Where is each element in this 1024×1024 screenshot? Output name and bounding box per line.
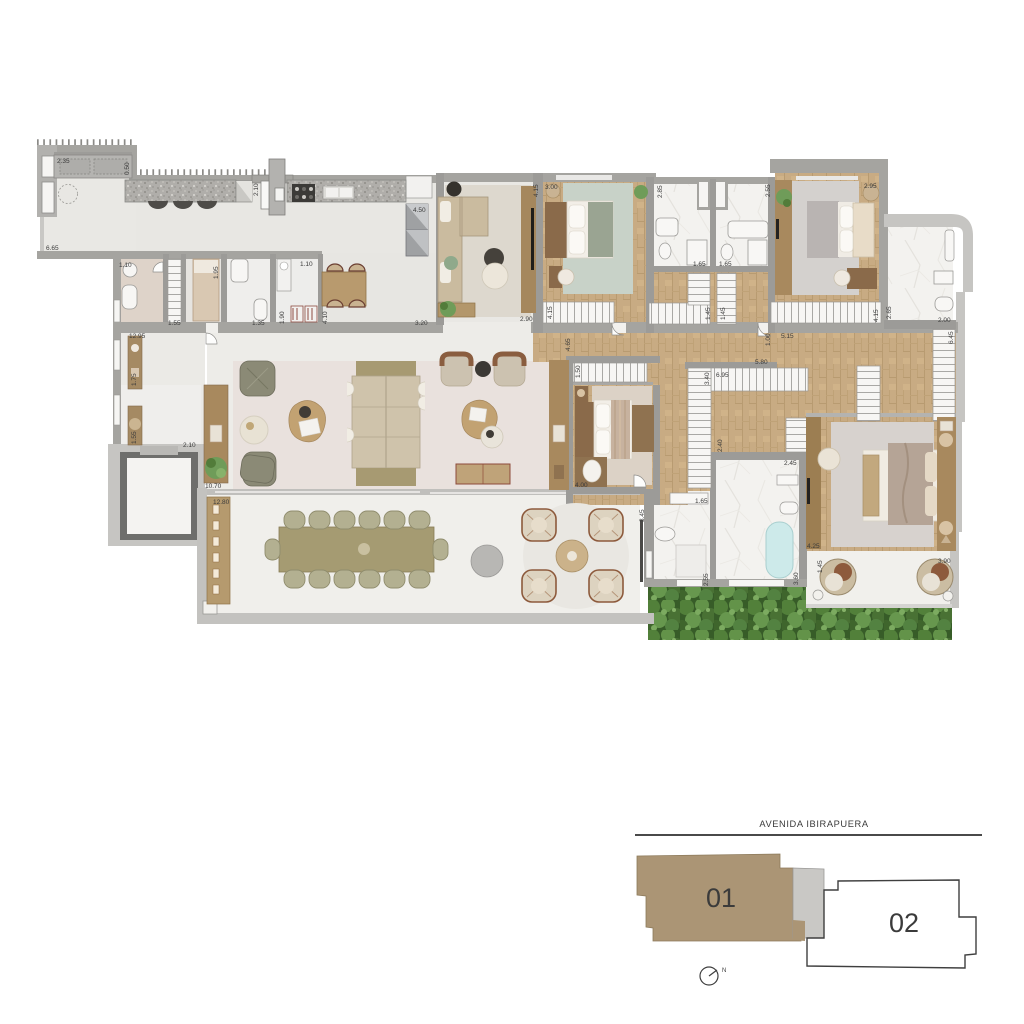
svg-text:12.95: 12.95 <box>129 333 146 340</box>
svg-text:1.90: 1.90 <box>279 311 286 324</box>
svg-text:6.65: 6.65 <box>46 245 59 252</box>
svg-text:1.45: 1.45 <box>705 307 712 320</box>
svg-text:4.25: 4.25 <box>807 543 820 550</box>
svg-text:1.65: 1.65 <box>695 498 708 505</box>
svg-text:1.75: 1.75 <box>131 373 138 386</box>
svg-text:1.50: 1.50 <box>575 365 582 378</box>
svg-text:5.15: 5.15 <box>781 333 794 340</box>
svg-text:2.40: 2.40 <box>717 439 724 452</box>
svg-text:4.50: 4.50 <box>413 207 426 214</box>
svg-text:1.95: 1.95 <box>213 266 220 279</box>
svg-text:N: N <box>722 968 726 974</box>
svg-text:3.40: 3.40 <box>704 372 711 385</box>
svg-text:1.55: 1.55 <box>168 320 181 327</box>
svg-text:4.15: 4.15 <box>547 306 554 319</box>
svg-text:2.85: 2.85 <box>657 185 664 198</box>
svg-text:3.20: 3.20 <box>415 320 428 327</box>
svg-text:02: 02 <box>889 908 919 938</box>
svg-text:3.45: 3.45 <box>639 509 646 522</box>
svg-text:1.45: 1.45 <box>720 307 727 320</box>
svg-text:6.95: 6.95 <box>716 372 729 379</box>
svg-text:0.50: 0.50 <box>124 162 131 175</box>
svg-text:1.65: 1.65 <box>719 261 732 268</box>
svg-text:1.10: 1.10 <box>300 261 313 268</box>
svg-text:5.80: 5.80 <box>755 359 768 366</box>
svg-text:2.95: 2.95 <box>864 183 877 190</box>
svg-text:1.65: 1.65 <box>693 261 706 268</box>
svg-text:2.55: 2.55 <box>765 184 772 197</box>
svg-text:2.90: 2.90 <box>520 316 533 323</box>
svg-text:01: 01 <box>706 883 736 913</box>
svg-text:AVENIDA IBIRAPUERA: AVENIDA IBIRAPUERA <box>759 819 869 829</box>
svg-text:1.45: 1.45 <box>817 560 824 573</box>
svg-text:6.45: 6.45 <box>948 331 955 344</box>
svg-text:3.00: 3.00 <box>545 184 558 191</box>
svg-text:12.80: 12.80 <box>213 499 230 506</box>
svg-text:4.10: 4.10 <box>322 311 329 324</box>
svg-text:4.15: 4.15 <box>533 184 540 197</box>
svg-text:1.00: 1.00 <box>765 333 772 346</box>
svg-text:1.35: 1.35 <box>252 320 265 327</box>
svg-text:2.10: 2.10 <box>253 183 260 196</box>
svg-text:2.00: 2.00 <box>938 317 951 324</box>
svg-text:4.65: 4.65 <box>565 338 572 351</box>
svg-text:2.10: 2.10 <box>183 442 196 449</box>
svg-text:2.45: 2.45 <box>784 460 797 467</box>
svg-text:10.70: 10.70 <box>205 483 222 490</box>
svg-text:4.00: 4.00 <box>575 482 588 489</box>
svg-text:1.55: 1.55 <box>131 431 138 444</box>
svg-text:2.35: 2.35 <box>57 158 70 165</box>
svg-text:3.90: 3.90 <box>938 558 951 565</box>
svg-text:3.60: 3.60 <box>793 572 800 585</box>
svg-text:1.10: 1.10 <box>119 262 132 269</box>
svg-text:2.55: 2.55 <box>703 573 710 586</box>
svg-text:4.15: 4.15 <box>873 309 880 322</box>
svg-text:2.65: 2.65 <box>886 306 893 319</box>
